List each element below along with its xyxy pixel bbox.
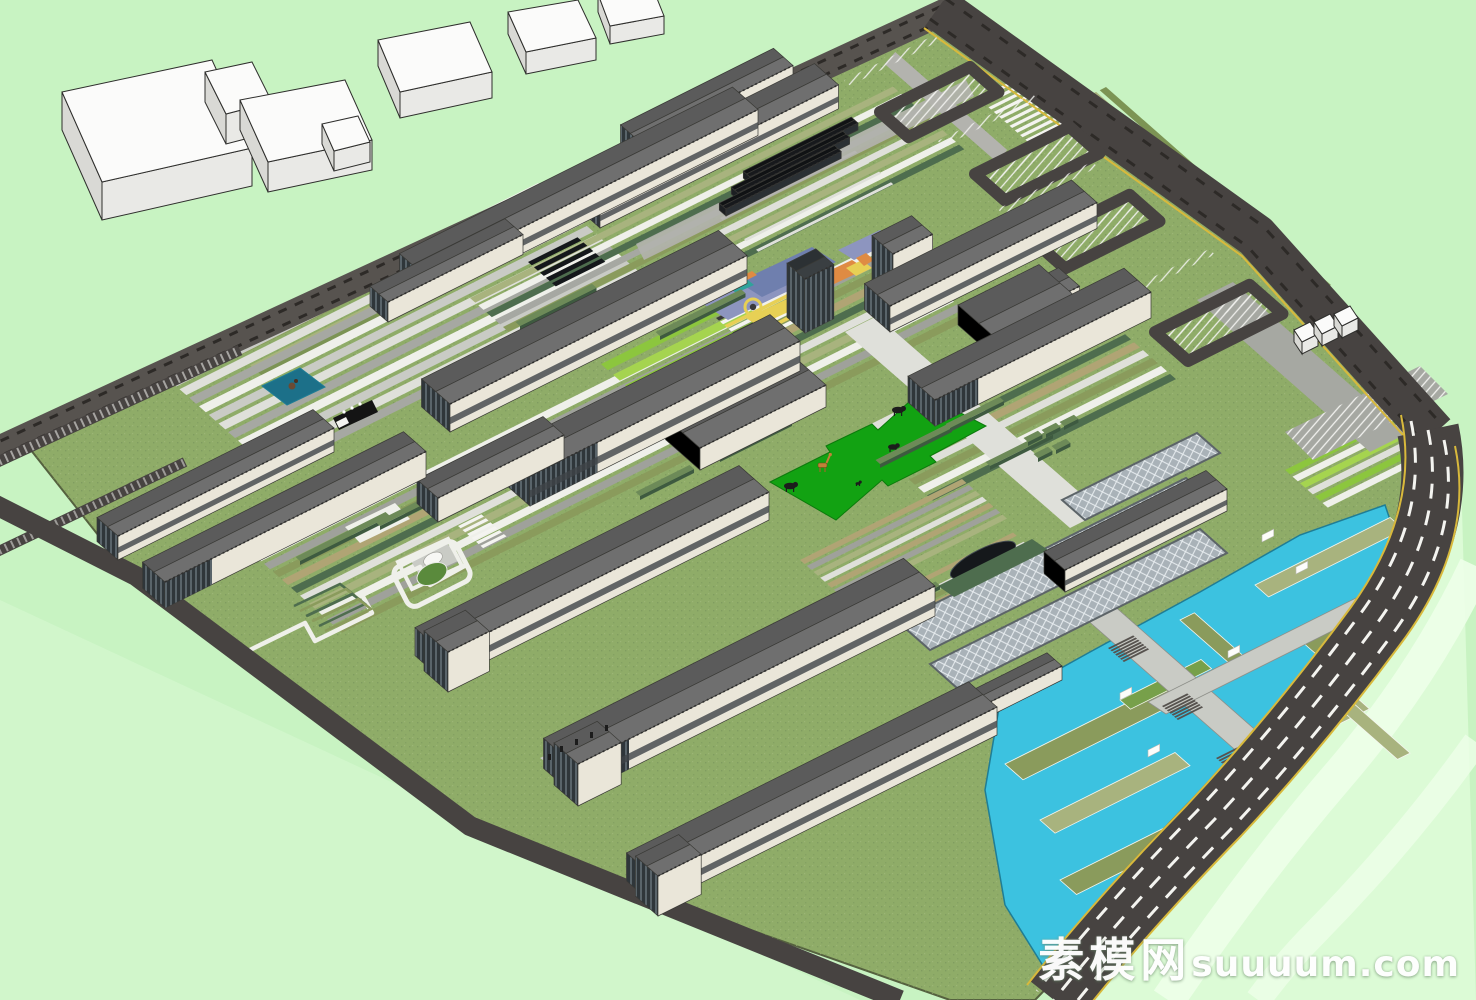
carousel-hub: [750, 304, 756, 310]
figure: [575, 739, 578, 745]
masterplan-scene: [0, 0, 1476, 1000]
sign-dot: [350, 406, 353, 409]
pool-sculpture-top: [294, 379, 298, 383]
figure: [605, 725, 608, 731]
context-block: [508, 0, 596, 74]
site-render: 素模网suuuum.com: [0, 0, 1476, 1000]
pool-sculpture: [289, 383, 296, 390]
figure: [590, 732, 593, 738]
figure: [560, 746, 563, 752]
sign-dot: [358, 402, 361, 405]
sign-dot: [342, 410, 345, 413]
figure: [548, 754, 551, 760]
playground-tower: [787, 249, 834, 333]
